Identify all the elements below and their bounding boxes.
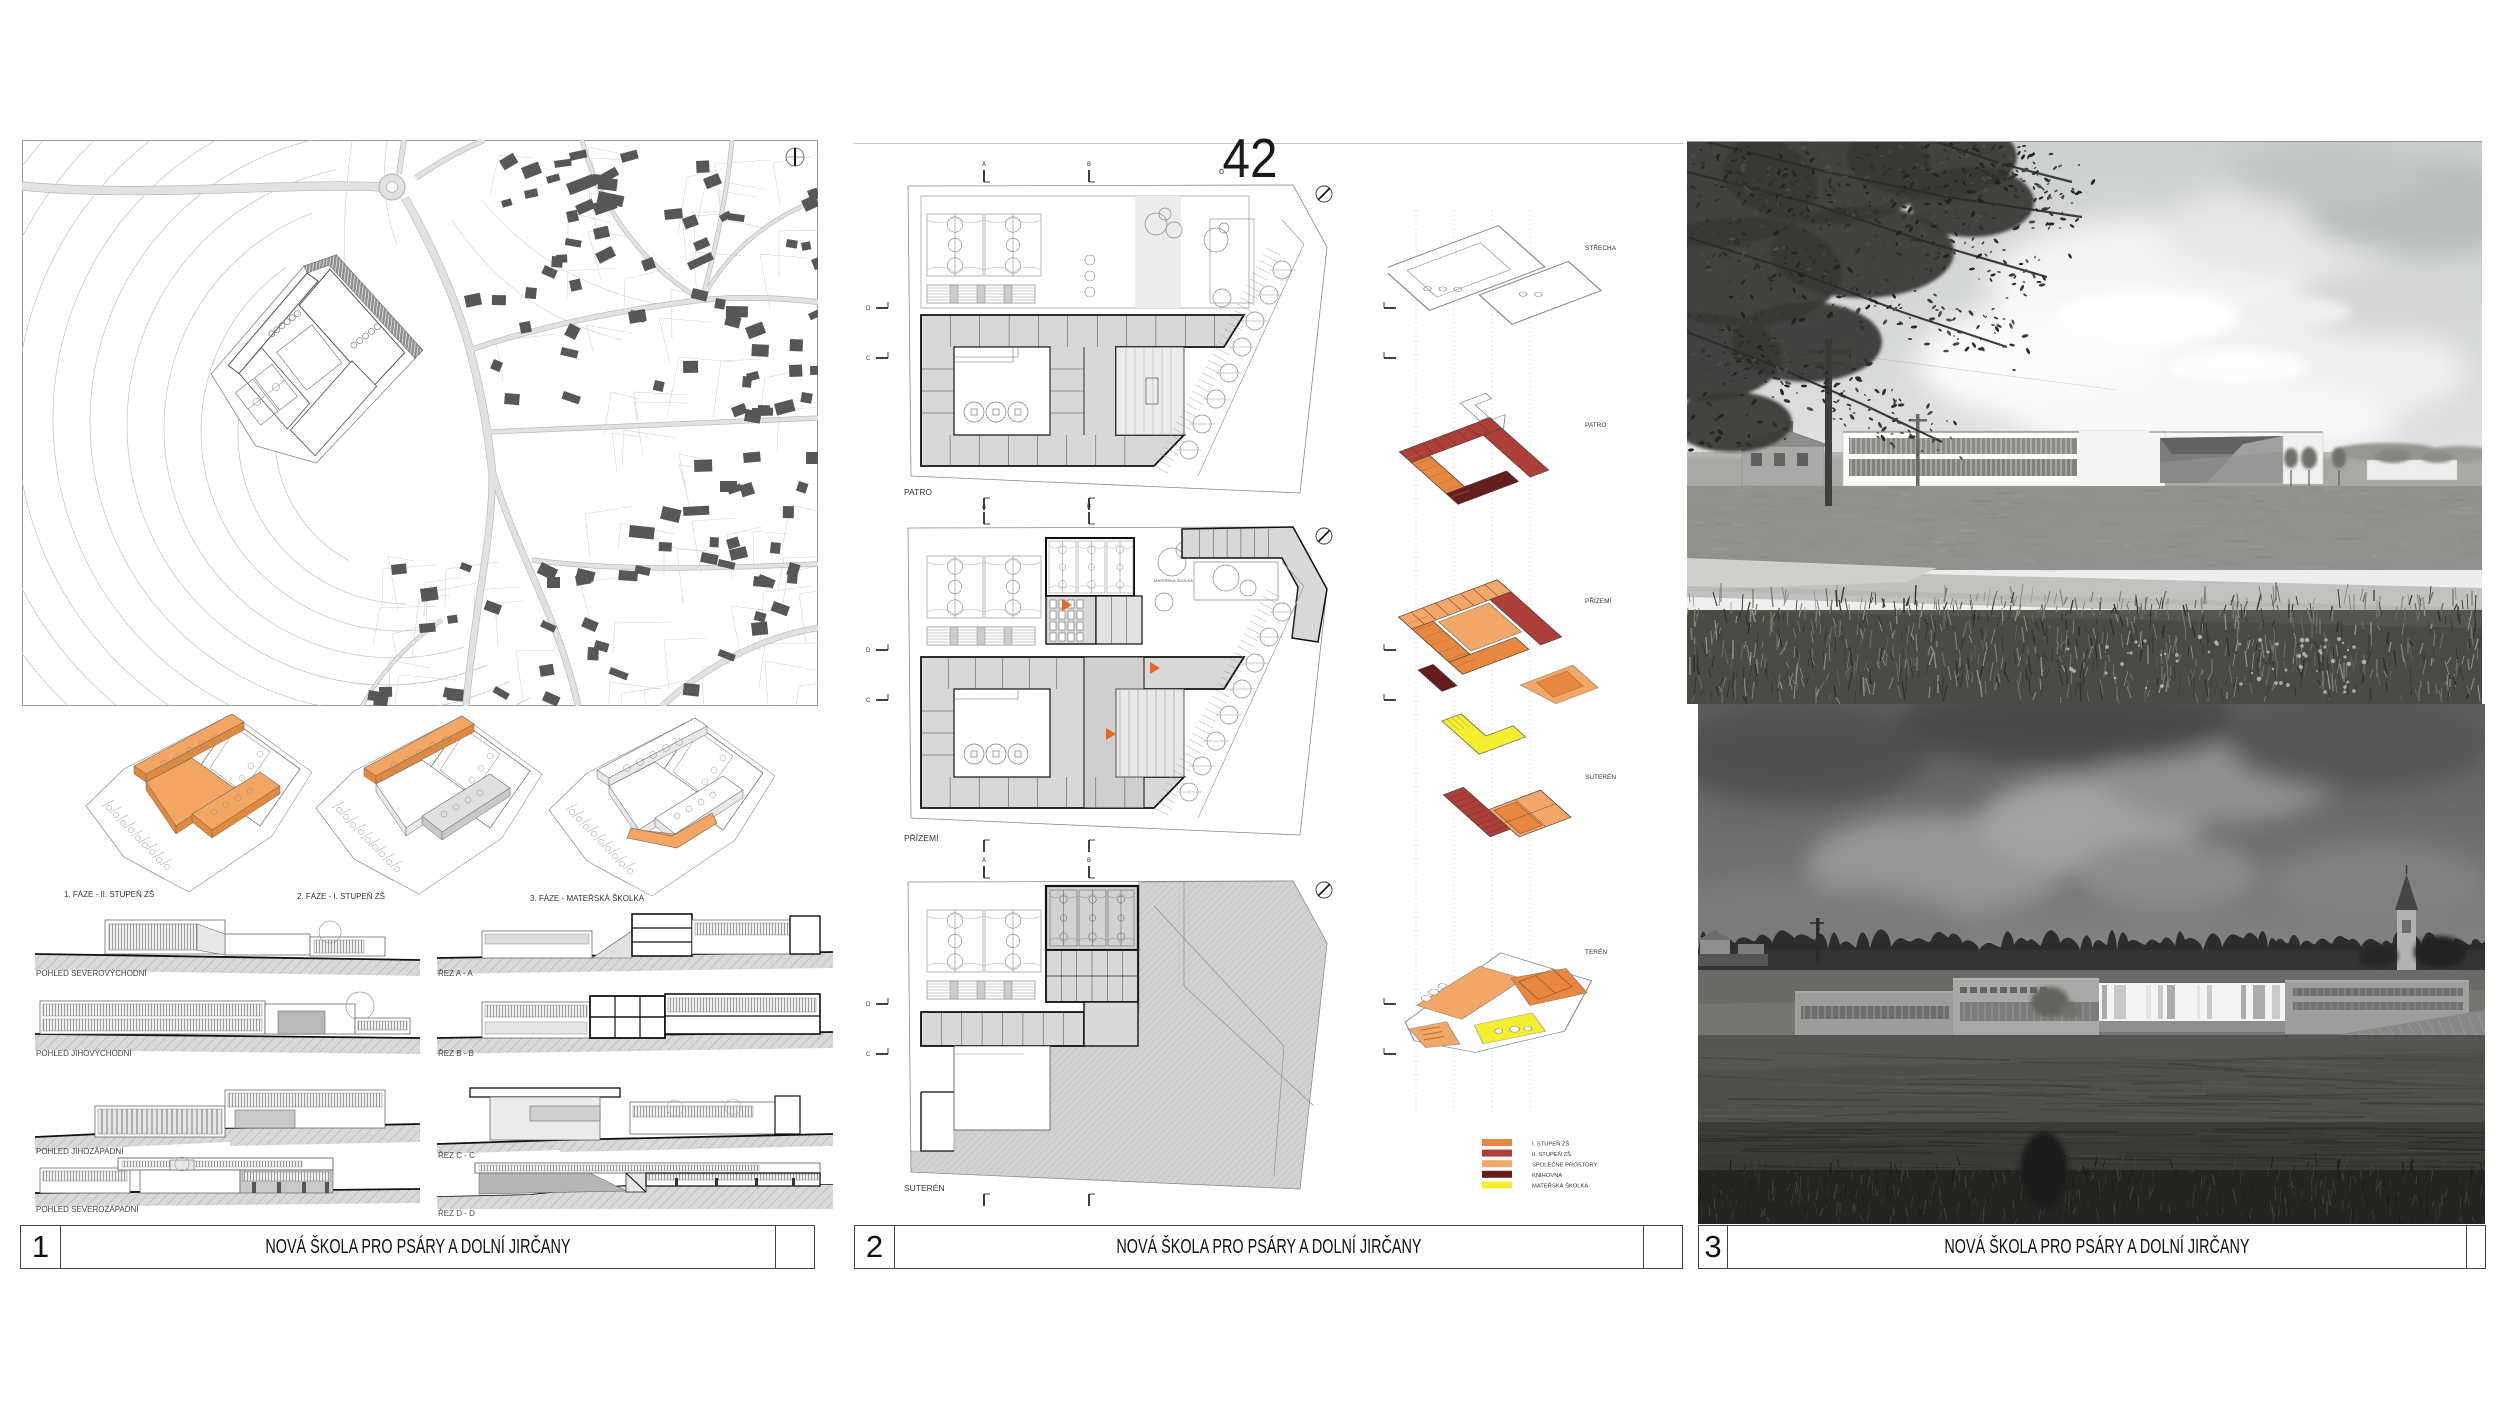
svg-text:C: C — [866, 698, 871, 704]
svg-text:MATEŘSKÁ ŠKOLKA: MATEŘSKÁ ŠKOLKA — [1154, 578, 1193, 583]
svg-text:PŘÍZEMÍ: PŘÍZEMÍ — [1585, 596, 1612, 605]
svg-text:MATEŘSKÁ ŠKOLKA: MATEŘSKÁ ŠKOLKA — [1532, 1182, 1588, 1190]
svg-text:SUTERÉN: SUTERÉN — [904, 1183, 945, 1193]
svg-text:PŘÍZEMÍ: PŘÍZEMÍ — [904, 833, 939, 843]
svg-text:C: C — [866, 356, 871, 362]
svg-text:KNIHOVNA: KNIHOVNA — [1532, 1173, 1562, 1179]
svg-text:D: D — [866, 1002, 871, 1008]
svg-text:POHLED SEVEROZÁPADNÍ: POHLED SEVEROZÁPADNÍ — [36, 1205, 139, 1214]
svg-text:II. STUPEŇ ZŠ: II. STUPEŇ ZŠ — [1532, 1151, 1571, 1158]
svg-text:2. FÁZE - I. STUPEŇ ZŠ: 2. FÁZE - I. STUPEŇ ZŠ — [297, 892, 385, 901]
svg-text:D: D — [866, 306, 871, 312]
svg-text:B: B — [1087, 504, 1091, 510]
svg-text:STŘECHA: STŘECHA — [1585, 243, 1617, 252]
svg-text:A: A — [982, 504, 986, 510]
svg-text:POHLED SEVEROVÝCHODNÍ: POHLED SEVEROVÝCHODNÍ — [36, 969, 147, 978]
svg-text:PATRO: PATRO — [1585, 422, 1606, 429]
svg-text:ŘEZ B - B: ŘEZ B - B — [438, 1049, 474, 1058]
svg-text:ŘEZ C - C: ŘEZ C - C — [438, 1151, 475, 1160]
svg-text:POHLED JIHOVÝCHODNÍ: POHLED JIHOVÝCHODNÍ — [36, 1049, 132, 1058]
svg-text:D: D — [866, 648, 871, 654]
svg-text:A: A — [982, 858, 986, 864]
svg-text:B: B — [1087, 858, 1091, 864]
svg-text:SPOLEČNÉ PROSTORY: SPOLEČNÉ PROSTORY — [1532, 1162, 1598, 1169]
svg-text:C: C — [866, 1052, 871, 1058]
svg-text:POHLED JIHOZÁPADNÍ: POHLED JIHOZÁPADNÍ — [36, 1147, 124, 1156]
svg-text:B: B — [1087, 162, 1091, 168]
svg-text:TERÉN: TERÉN — [1585, 947, 1607, 956]
svg-text:1. FÁZE - II. STUPEŇ ZŠ: 1. FÁZE - II. STUPEŇ ZŠ — [64, 890, 154, 899]
svg-text:ŘEZ D - D: ŘEZ D - D — [438, 1209, 475, 1218]
svg-text:ŘEZ A - A: ŘEZ A - A — [438, 969, 473, 978]
svg-text:PATRO: PATRO — [904, 487, 932, 497]
svg-text:3. FÁZE - MATEŘSKÁ ŠKOLKA: 3. FÁZE - MATEŘSKÁ ŠKOLKA — [530, 894, 645, 903]
svg-text:SUTERÉN: SUTERÉN — [1585, 772, 1616, 781]
svg-text:A: A — [982, 162, 986, 168]
svg-text:I. STUPEŇ ZŠ: I. STUPEŇ ZŠ — [1532, 1140, 1569, 1147]
